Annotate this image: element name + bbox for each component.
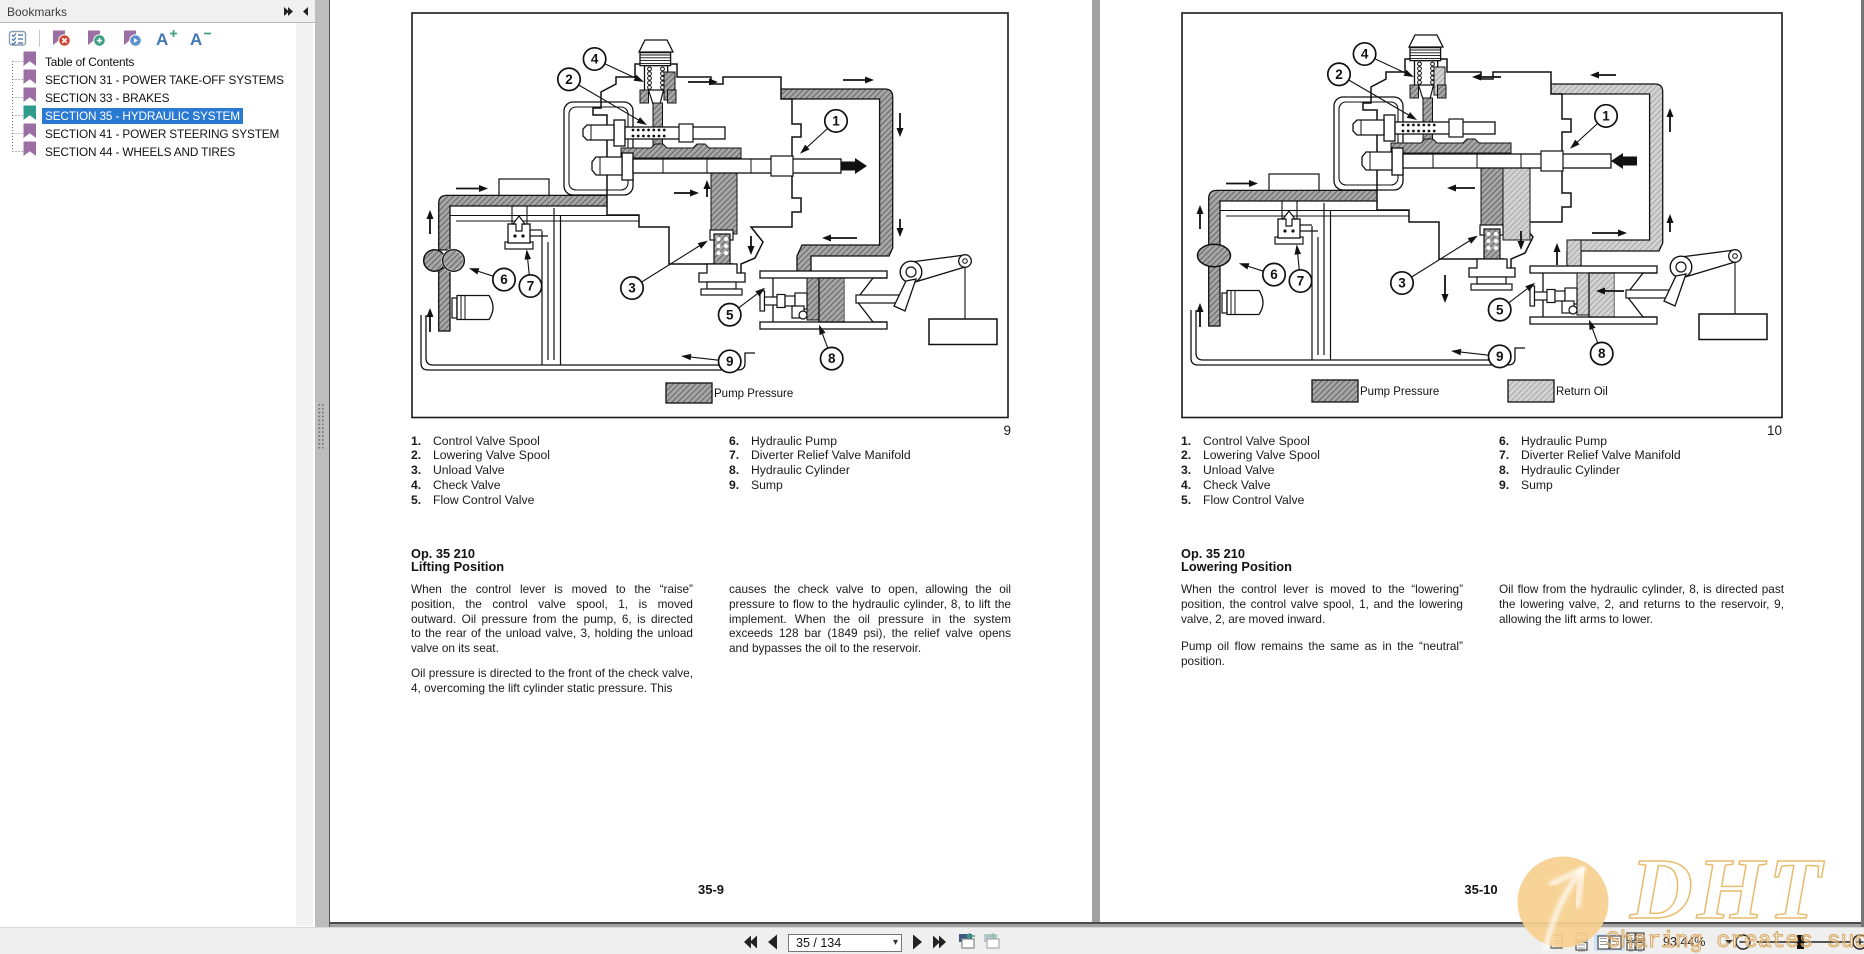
svg-text:93.44%: 93.44%: [1663, 935, 1705, 949]
svg-text:2: 2: [1335, 67, 1343, 82]
svg-text:4: 4: [591, 52, 599, 67]
svg-text:5: 5: [1496, 302, 1504, 317]
svg-text:5: 5: [726, 307, 734, 322]
svg-text:9: 9: [1496, 349, 1504, 364]
svg-text:Return Oil: Return Oil: [1556, 386, 1608, 398]
svg-text:8: 8: [1598, 346, 1606, 361]
svg-text:6: 6: [500, 272, 508, 287]
svg-text:2: 2: [565, 72, 573, 87]
svg-text:A: A: [190, 30, 202, 49]
svg-text:A: A: [156, 30, 168, 49]
svg-text:7: 7: [527, 279, 535, 294]
svg-text:4: 4: [1361, 47, 1369, 62]
svg-text:9: 9: [726, 354, 734, 369]
svg-text:1: 1: [1602, 109, 1610, 124]
svg-text:3: 3: [628, 281, 636, 296]
svg-text:7: 7: [1297, 274, 1305, 289]
svg-text:8: 8: [828, 351, 836, 366]
svg-text:6: 6: [1270, 267, 1278, 282]
svg-text:1: 1: [832, 114, 840, 129]
svg-text:3: 3: [1398, 276, 1406, 291]
svg-text:Pump Pressure: Pump Pressure: [1360, 386, 1439, 398]
svg-text:Pump Pressure: Pump Pressure: [714, 388, 793, 400]
